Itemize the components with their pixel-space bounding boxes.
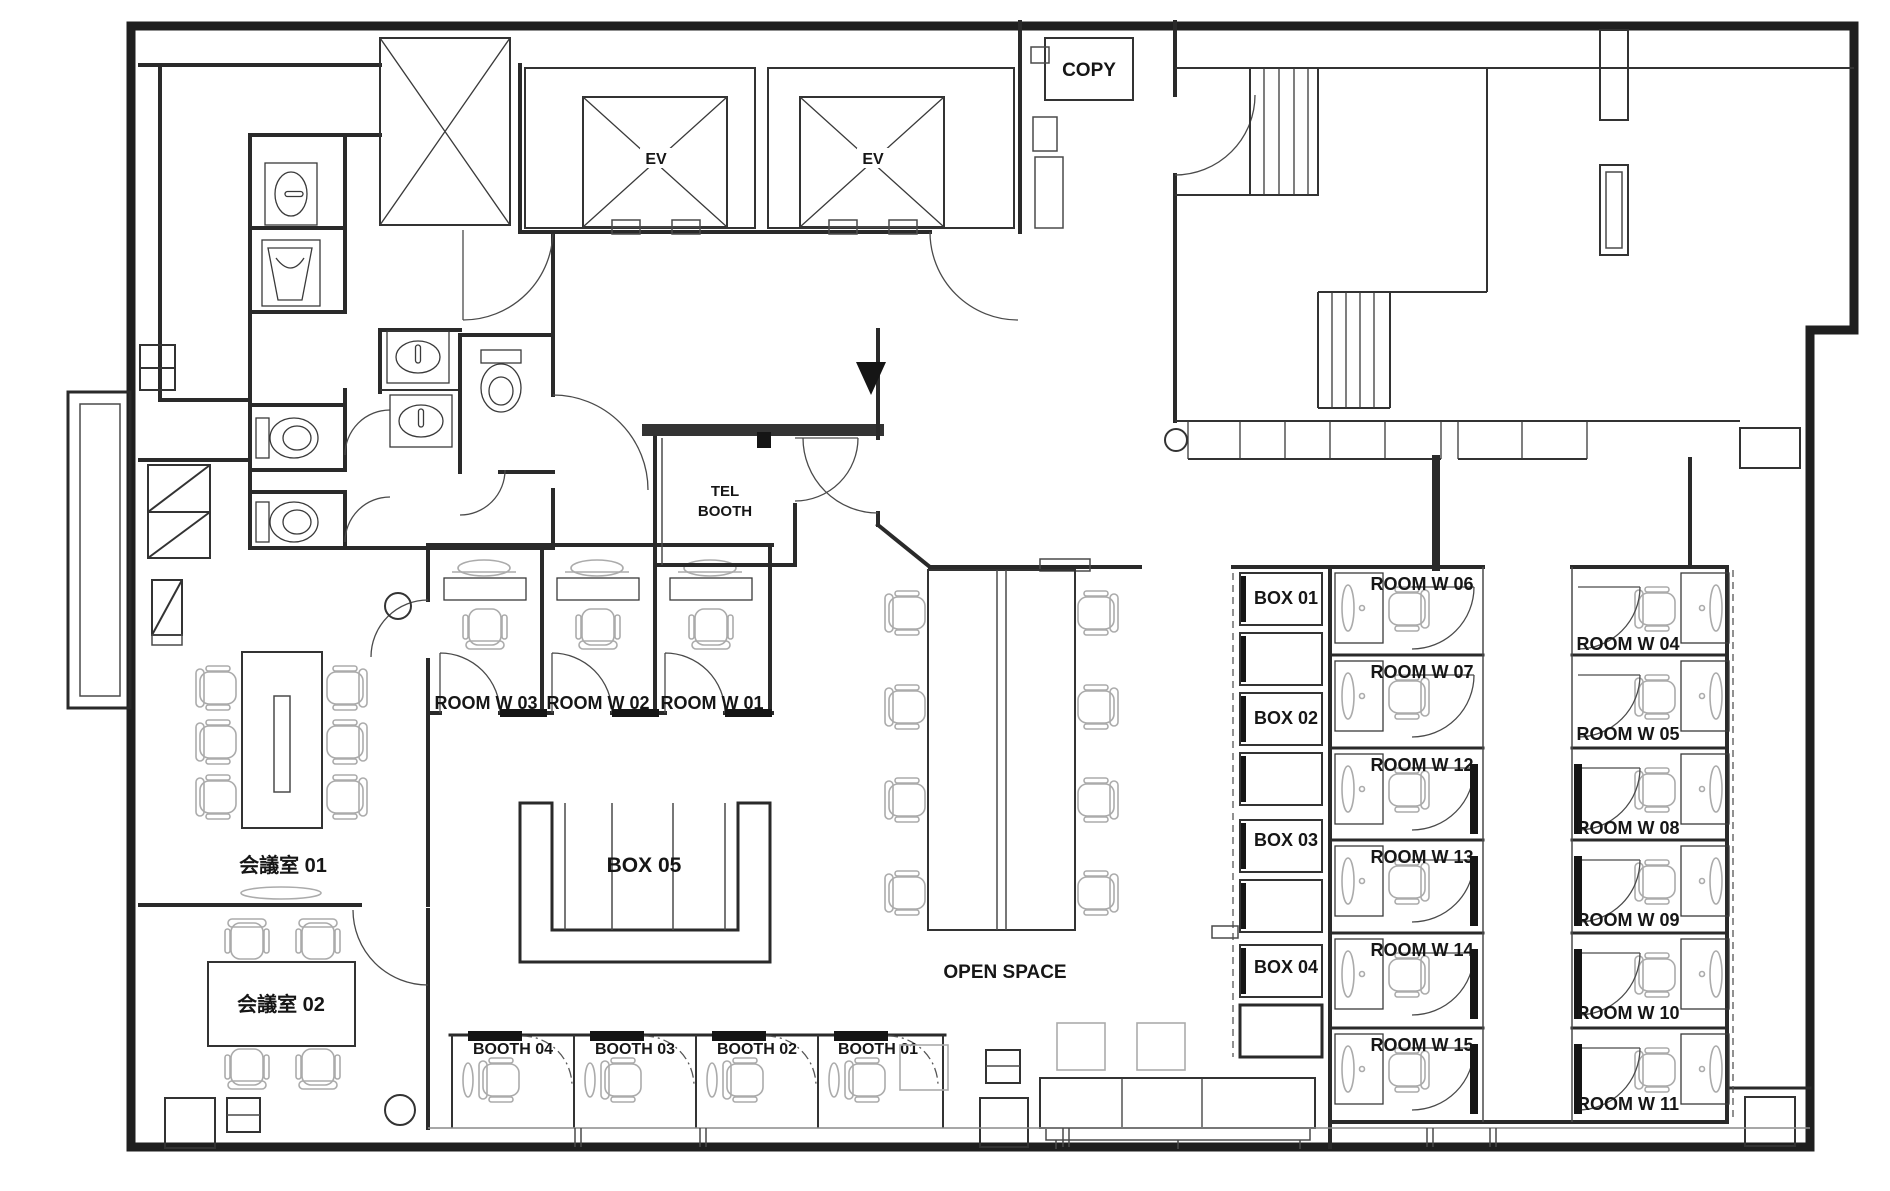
mop-sink-icon <box>262 240 320 306</box>
room-w08-label: ROOM W 08 <box>1576 818 1679 838</box>
side-table <box>1137 1023 1185 1070</box>
booth-row: BOOTH 04 BOOTH 03 BOOTH 02 BOOTH 01 <box>450 1031 945 1128</box>
sofa <box>1040 1078 1315 1128</box>
core-washrooms <box>140 65 648 645</box>
toilet-icon <box>481 350 521 412</box>
box-03-label: BOX 03 <box>1254 830 1318 850</box>
open-space: OPEN SPACE <box>885 559 1140 983</box>
room-w13-label: ROOM W 13 <box>1370 847 1473 867</box>
booth-02-label: BOOTH 02 <box>717 1041 797 1058</box>
room-w11-label: ROOM W 11 <box>1577 1094 1679 1114</box>
room-w07-label: ROOM W 07 <box>1370 662 1473 682</box>
locker-column: BOX 01 BOX 02 BOX 03 BOX 04 <box>1212 567 1330 1147</box>
meeting-room-1: 会議室 01 <box>140 460 428 1128</box>
wall-sink-icon <box>265 163 317 225</box>
room-w10-label: ROOM W 10 <box>1576 1003 1679 1023</box>
elevator-label: EV <box>645 151 667 168</box>
tel-booth-label-line2: BOOTH <box>698 503 752 520</box>
column <box>1165 429 1187 451</box>
room-w01-label: ROOM W 01 <box>660 693 763 713</box>
toilet-icon <box>256 502 318 542</box>
box-05-pod: BOX 05 <box>520 803 770 962</box>
elevator-label: EV <box>862 151 884 168</box>
meeting-room-2: 会議室 02 <box>165 919 415 1148</box>
meeting-room-2-label: 会議室 02 <box>237 992 325 1016</box>
room-w02-label: ROOM W 02 <box>546 693 649 713</box>
meeting-room-1-label: 会議室 01 <box>239 853 327 877</box>
service-boxes <box>1031 47 1063 228</box>
column <box>385 1095 415 1125</box>
booth-01-label: BOOTH 01 <box>838 1041 918 1058</box>
elevator-2-icon: EV <box>800 97 944 234</box>
meeting-table <box>242 652 322 828</box>
floor-plan-canvas: EV EV COPY <box>0 0 1890 1191</box>
copy-room-label: COPY <box>1062 60 1116 81</box>
room-w09-label: ROOM W 09 <box>1576 910 1679 930</box>
room-w04-label: ROOM W 04 <box>1576 634 1679 654</box>
booth-04-label: BOOTH 04 <box>473 1041 553 1058</box>
room-w14-label: ROOM W 14 <box>1370 940 1473 960</box>
box-05-label: BOX 05 <box>607 854 682 877</box>
open-space-label: OPEN SPACE <box>943 962 1066 983</box>
sink-icon <box>390 395 452 447</box>
long-table <box>928 570 1075 930</box>
floor-plan-page: EV EV COPY <box>0 0 1890 1191</box>
tel-booth-label-line1: TEL <box>711 483 739 500</box>
stair-flight-lower <box>1332 292 1374 408</box>
toilet-icon <box>256 418 318 458</box>
room-w06-label: ROOM W 06 <box>1370 574 1473 594</box>
stair-block <box>1165 22 1854 1146</box>
box-01-label: BOX 01 <box>1254 588 1318 608</box>
pipe-shafts <box>140 345 210 645</box>
lounge <box>900 1023 1315 1149</box>
entrance-triangle-icon <box>856 362 886 395</box>
side-table <box>1057 1023 1105 1070</box>
sink-icon <box>387 331 449 383</box>
elevator-1-icon: EV <box>583 97 727 234</box>
console-table <box>241 887 321 899</box>
room-w15-label: ROOM W 15 <box>1370 1035 1473 1055</box>
column <box>385 593 411 619</box>
room-w05-label: ROOM W 05 <box>1576 724 1679 744</box>
room-w03-label: ROOM W 03 <box>434 693 537 713</box>
rooms-w01-03: ROOM W 03 ROOM W 02 ROOM W 01 <box>428 545 772 717</box>
tel-booth: TEL BOOTH <box>648 330 930 567</box>
rooms-right-column: ROOM W 04 ROOM W 05 ROOM W 08 ROOM W 09 … <box>1572 567 1733 1122</box>
box-02-label: BOX 02 <box>1254 708 1318 728</box>
booth-03-label: BOOTH 03 <box>595 1041 675 1058</box>
corner-room <box>1745 1097 1795 1146</box>
box-04-label: BOX 04 <box>1254 957 1318 977</box>
elevator-hall: EV EV COPY <box>380 22 1133 320</box>
room-w12-label: ROOM W 12 <box>1370 755 1473 775</box>
